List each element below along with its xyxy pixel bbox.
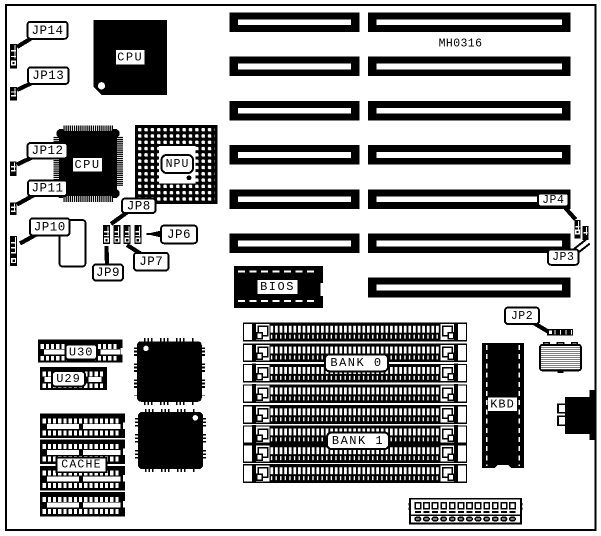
svg-text:JP6: JP6	[167, 228, 191, 242]
svg-text:CPU: CPU	[117, 51, 143, 65]
svg-text:JP14: JP14	[31, 24, 63, 38]
svg-text:NPU: NPU	[166, 158, 190, 171]
svg-text:JP9: JP9	[96, 266, 120, 280]
svg-text:JP4: JP4	[542, 194, 564, 207]
svg-text:JP7: JP7	[139, 255, 163, 269]
svg-text:U29: U29	[56, 372, 81, 386]
svg-text:JP10: JP10	[34, 220, 66, 234]
svg-text:JP3: JP3	[552, 251, 574, 264]
svg-text:U30: U30	[69, 345, 94, 359]
svg-text:BANK 1: BANK 1	[332, 434, 384, 448]
svg-text:JP2: JP2	[511, 310, 533, 323]
svg-text:KBD: KBD	[490, 397, 515, 411]
svg-text:CPU: CPU	[74, 158, 100, 172]
svg-text:JP11: JP11	[31, 182, 63, 196]
svg-text:JP13: JP13	[32, 69, 64, 83]
svg-text:BANK 0: BANK 0	[330, 356, 382, 370]
svg-text:MH0316: MH0316	[439, 38, 483, 51]
svg-text:JP8: JP8	[127, 199, 151, 213]
svg-text:CACHE: CACHE	[61, 459, 102, 472]
svg-text:BIOS: BIOS	[260, 280, 295, 294]
svg-text:JP12: JP12	[31, 144, 63, 158]
